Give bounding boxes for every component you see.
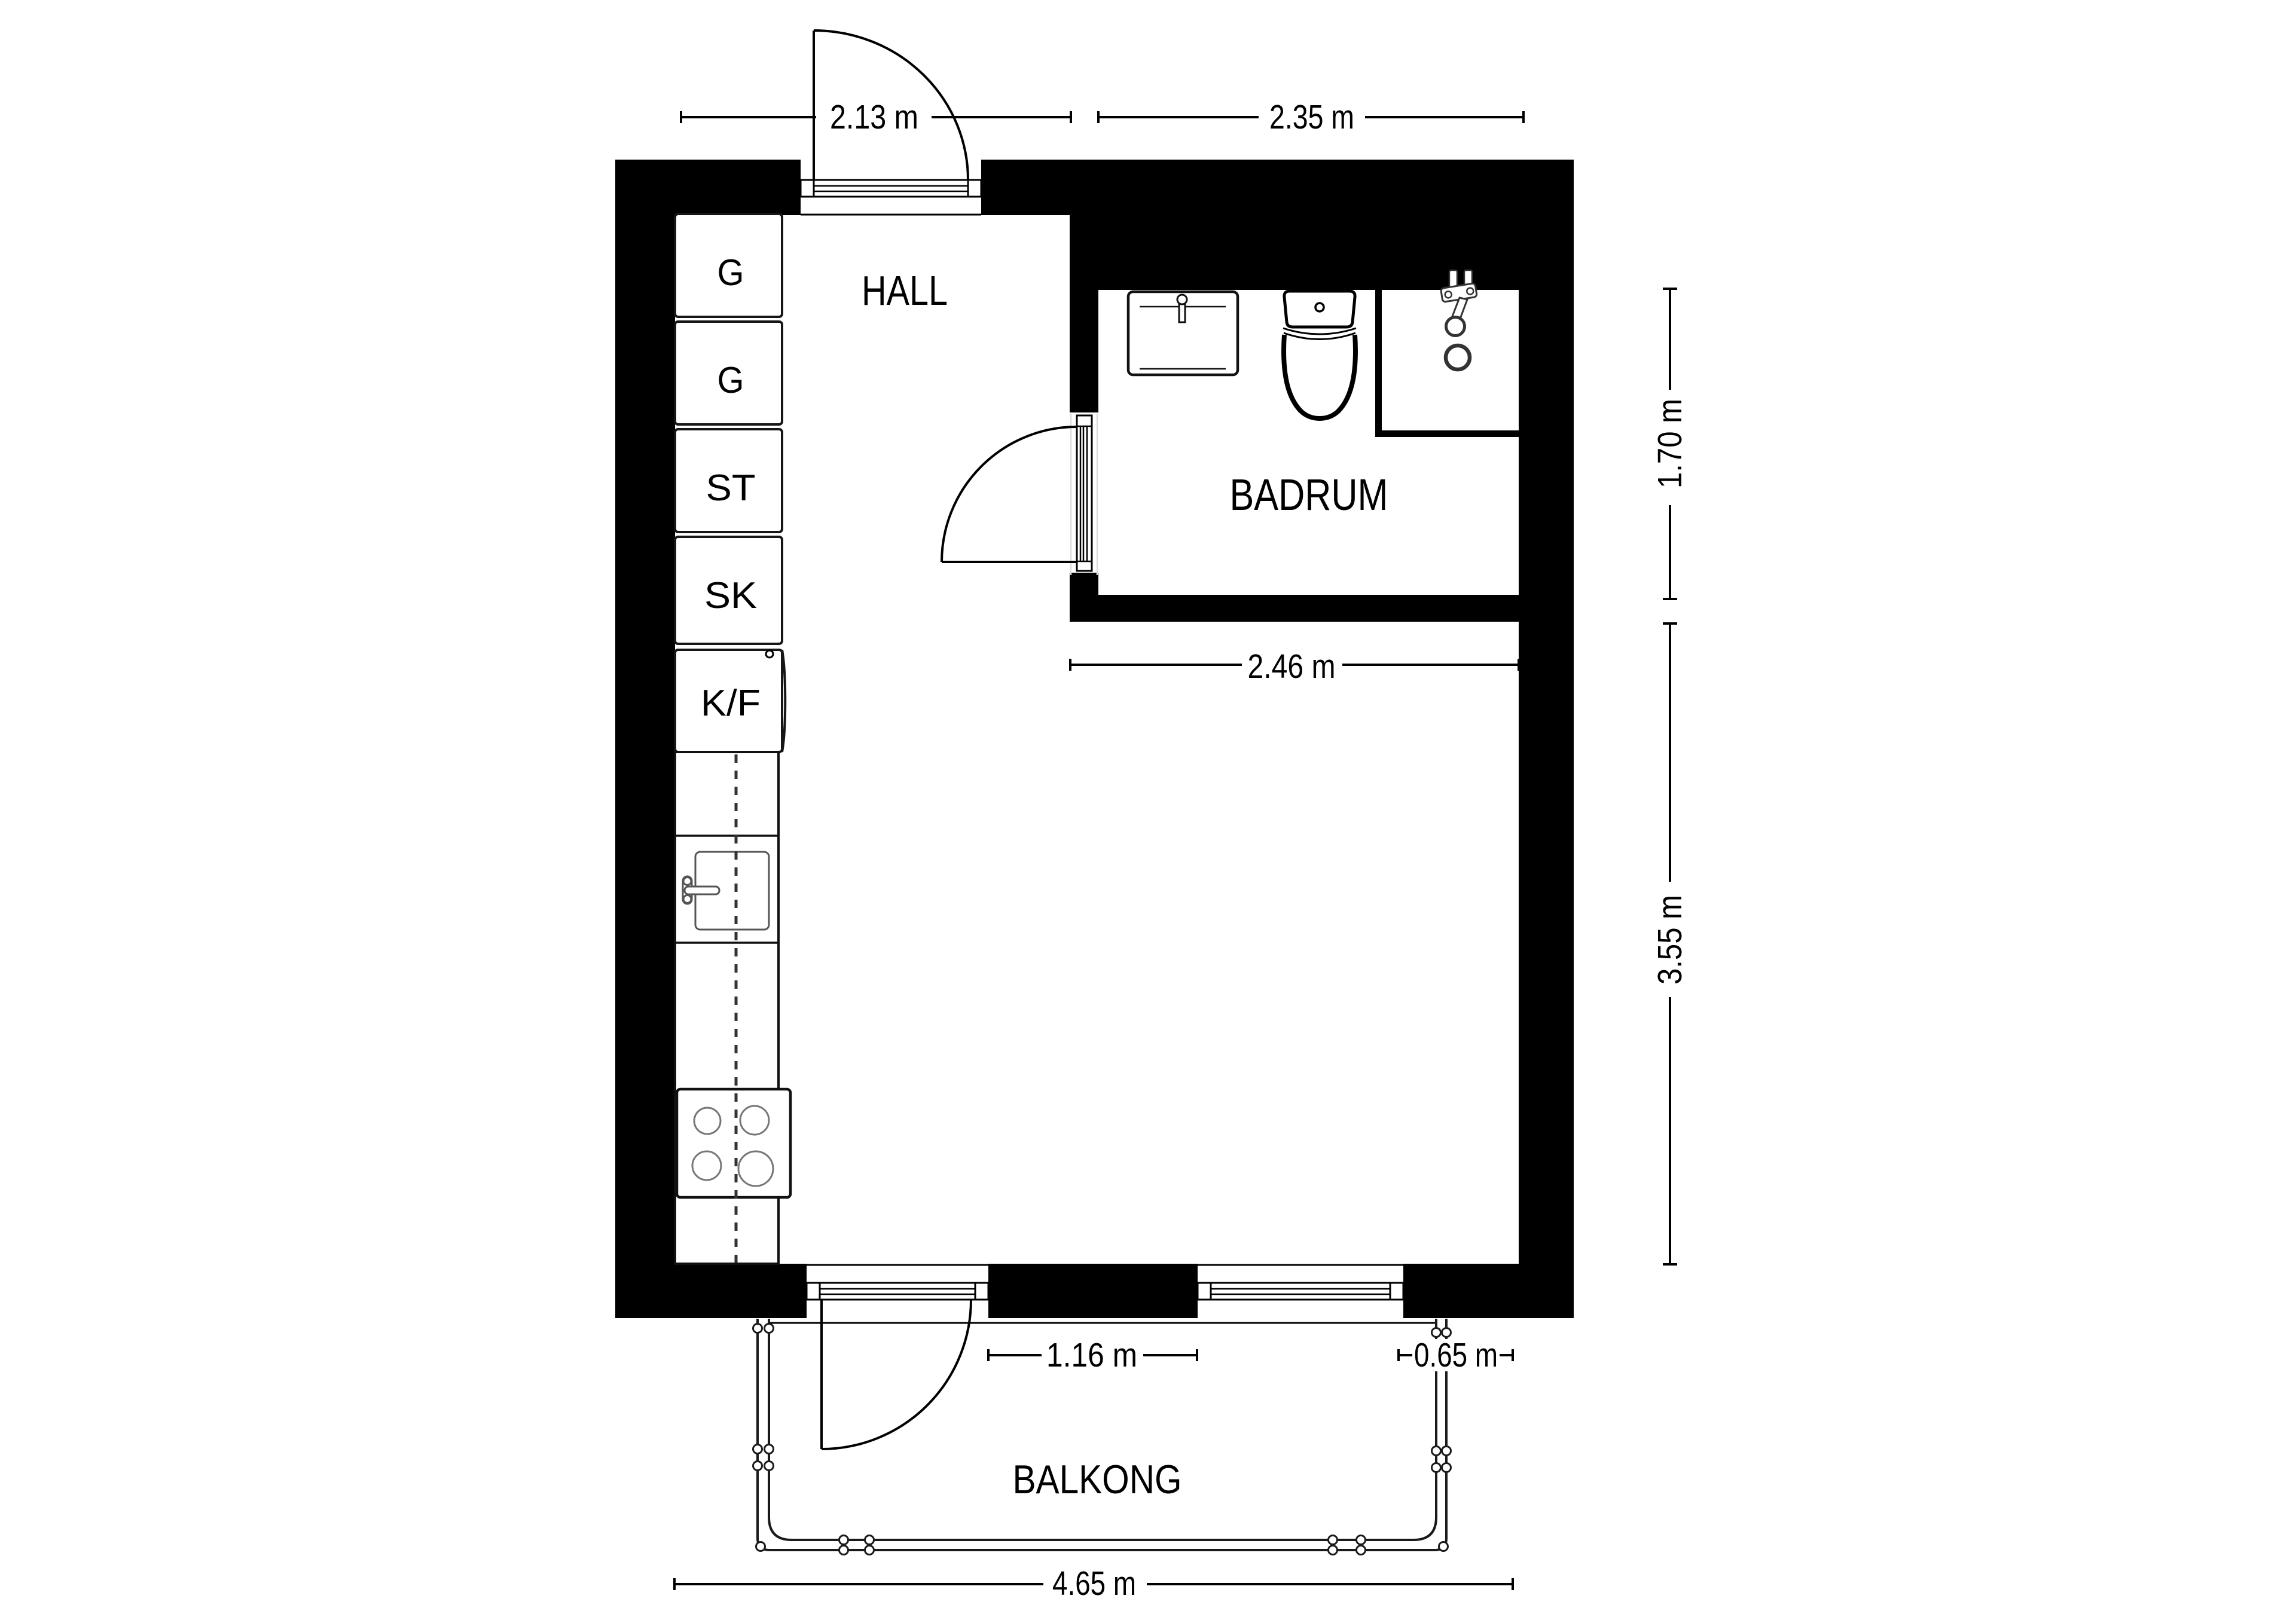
svg-text:3.55 m: 3.55 m [1651, 895, 1689, 985]
svg-text:G: G [717, 252, 744, 294]
svg-text:2.35 m: 2.35 m [1269, 98, 1354, 136]
svg-text:1.16 m: 1.16 m [1046, 1336, 1137, 1374]
svg-text:BADRUM: BADRUM [1230, 470, 1388, 519]
svg-text:BALKONG: BALKONG [1013, 1457, 1182, 1502]
svg-text:SK: SK [704, 575, 757, 616]
svg-text:K/F: K/F [701, 683, 761, 724]
svg-text:2.46 m: 2.46 m [1248, 647, 1336, 686]
svg-text:HALL: HALL [862, 267, 948, 314]
svg-text:ST: ST [706, 467, 756, 509]
svg-text:1.70 m: 1.70 m [1651, 399, 1689, 488]
svg-text:G: G [717, 360, 744, 401]
svg-text:2.13 m: 2.13 m [830, 98, 918, 136]
svg-text:4.65 m: 4.65 m [1052, 1564, 1136, 1603]
svg-text:0.65 m: 0.65 m [1414, 1336, 1498, 1374]
